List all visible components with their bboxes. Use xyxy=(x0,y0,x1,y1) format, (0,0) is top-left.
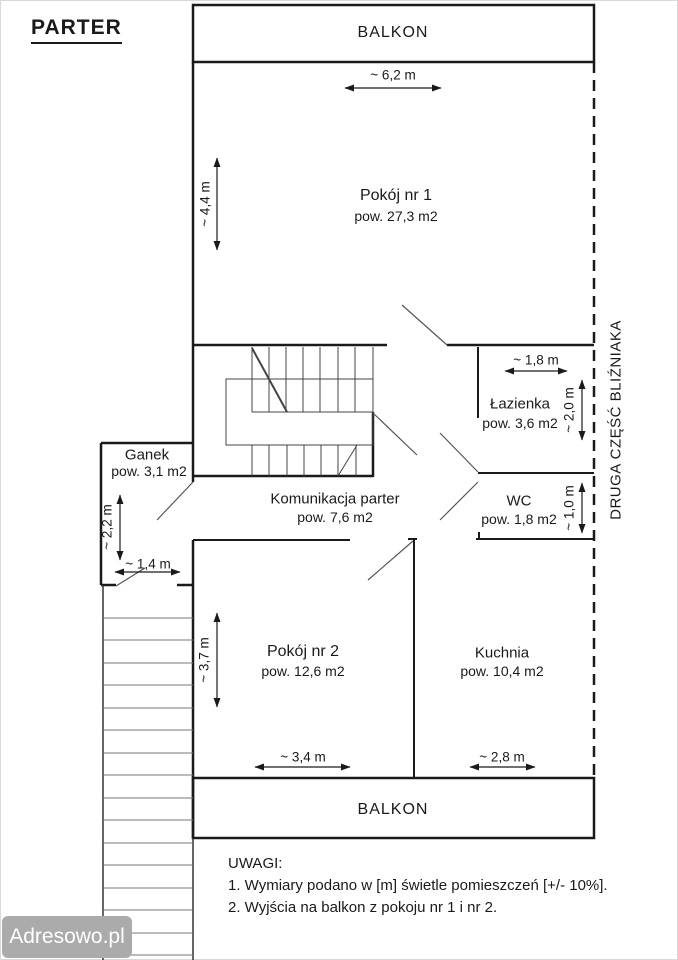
note-line-1: 1. Wymiary podano w [m] świetle pomieszc… xyxy=(228,875,608,897)
watermark-badge: Adresowo.pl xyxy=(2,916,132,958)
wc-height-dim: ~ 1,0 m xyxy=(562,485,577,530)
porch-width-dim: ~ 1,4 m xyxy=(125,557,170,572)
watermark-label: Adresowo.pl xyxy=(9,925,125,949)
room1-name: Pokój nr 1 xyxy=(360,187,432,205)
wc-name: WC xyxy=(507,493,532,510)
wc-area: pow. 1,8 m2 xyxy=(481,511,557,527)
floor-plan-page: PARTER BALKON BALKON DRUGA CZĘŚĆ BLIŹNIA… xyxy=(0,0,678,960)
porch-area: pow. 3,1 m2 xyxy=(111,463,187,479)
notes-heading: UWAGI: xyxy=(228,853,608,875)
staircase-interior xyxy=(226,347,373,476)
outdoor-stair-sides xyxy=(103,585,193,960)
notes-block: UWAGI: 1. Wymiary podano w [m] świetle p… xyxy=(228,853,608,919)
floor-plan-drawing xyxy=(0,0,678,960)
room2-width-dim: ~ 3,4 m xyxy=(280,750,325,765)
porch-name: Ganek xyxy=(125,447,169,464)
hall-name: Komunikacja parter xyxy=(270,491,399,508)
kitchen-width-dim: ~ 2,8 m xyxy=(479,750,524,765)
room2-name: Pokój nr 2 xyxy=(267,643,339,661)
bathroom-area: pow. 3,6 m2 xyxy=(482,415,558,431)
balcony-top-label: BALKON xyxy=(358,24,429,42)
stair-treads-lower xyxy=(252,445,357,476)
hall-bottom-wall xyxy=(193,539,417,540)
kitchen-area: pow. 10,4 m2 xyxy=(460,663,543,679)
balcony-bottom-label: BALKON xyxy=(358,801,429,819)
porch-height-dim: ~ 2,2 m xyxy=(100,504,115,549)
room2-height-dim: ~ 3,7 m xyxy=(197,637,212,682)
bathroom-width-dim: ~ 1,8 m xyxy=(513,353,558,368)
page-title: PARTER xyxy=(31,16,122,44)
room1-height-dim: ~ 4,4 m xyxy=(198,181,213,226)
duplex-boundary-label: DRUGA CZĘŚĆ BLIŹNIAKA xyxy=(608,320,625,520)
kitchen-name: Kuchnia xyxy=(475,645,529,662)
staircase-outdoor xyxy=(103,585,193,960)
bathroom-height-dim: ~ 2,0 m xyxy=(562,387,577,432)
room1-width-dim: ~ 6,2 m xyxy=(370,68,415,83)
note-line-2: 2. Wyjścia na balkon z pokoju nr 1 i nr … xyxy=(228,897,608,919)
outdoor-stair-treads xyxy=(103,618,193,955)
wc-walls xyxy=(476,532,594,539)
room2-area: pow. 12,6 m2 xyxy=(261,663,344,679)
hall-area: pow. 7,6 m2 xyxy=(297,509,373,525)
room1-area: pow. 27,3 m2 xyxy=(354,208,437,224)
bathroom-name: Łazienka xyxy=(490,396,550,413)
